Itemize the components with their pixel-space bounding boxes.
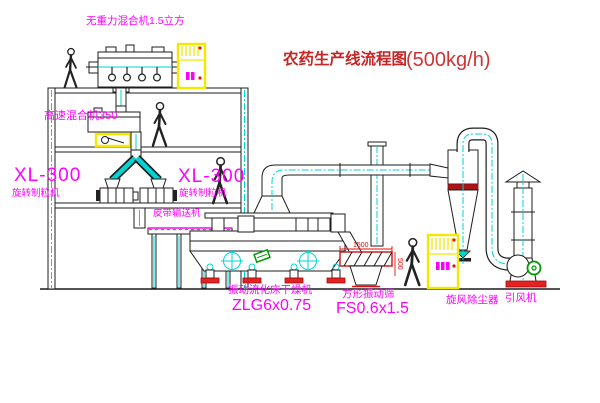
label-granulator-left-name: 旋转制粒机 — [12, 187, 60, 199]
label-granulator-right-model: XL-300 — [178, 166, 245, 187]
sieve-base — [350, 266, 382, 285]
label-granulator-left-model: XL-300 — [14, 165, 81, 186]
pesticide-line-flow-diagram: 农药生产线流程图 (500kg/h) 无重力混合机1.5立方 高速混合机350 … — [0, 0, 600, 403]
floor-slab-top — [48, 88, 248, 93]
diagram-title: 农药生产线流程图 — [282, 49, 407, 68]
floor-slab-3 — [48, 203, 248, 208]
label-gravity-mixer: 无重力混合机1.5立方 — [86, 14, 185, 27]
label-fan: 引风机 — [505, 291, 537, 304]
cabinet-top-indicator — [198, 76, 201, 79]
cabinet-ground-label-mark — [436, 262, 440, 270]
diagram-title-capacity: (500kg/h) — [406, 49, 491, 71]
label-dryer-name: 振动流化床干燥机 — [228, 283, 312, 296]
cabinet-top-label-mark — [186, 72, 190, 80]
label-sieve-model: FS0.6x1.5 — [336, 300, 409, 317]
label-sieve-name: 方形振动筛 — [342, 287, 395, 300]
label-high-speed-mixer: 高速混合机350 — [44, 108, 117, 122]
granulator-right — [140, 188, 177, 203]
dryer-top-frame — [205, 213, 333, 218]
dryer-feed-hood — [238, 216, 254, 232]
label-cyclone: 旋风除尘器 — [446, 293, 499, 306]
diagram-svg: 农药生产线流程图 (500kg/h) 无重力混合机1.5立方 高速混合机350 … — [0, 0, 600, 403]
floor-slab-2 — [48, 147, 248, 152]
fan-motor — [528, 262, 541, 275]
dim-sieve-width: 500 — [396, 258, 403, 270]
dim-sieve-length: 1500 — [353, 242, 369, 249]
control-cabinet-top — [178, 44, 205, 88]
label-belt-conveyor: 皮带输送机 — [153, 207, 201, 219]
fan-scroll — [507, 255, 529, 277]
sieve-exhaust-duct — [368, 142, 386, 246]
control-cabinet-ground — [428, 235, 458, 288]
label-dryer-model: ZLG6x0.75 — [232, 297, 311, 314]
label-granulator-right-name: 旋转制粒机 — [179, 187, 227, 199]
granulator-left — [96, 188, 138, 203]
motor-pulley — [102, 137, 109, 144]
fan-base — [506, 281, 546, 287]
dryer-discharge-hood — [331, 214, 345, 232]
